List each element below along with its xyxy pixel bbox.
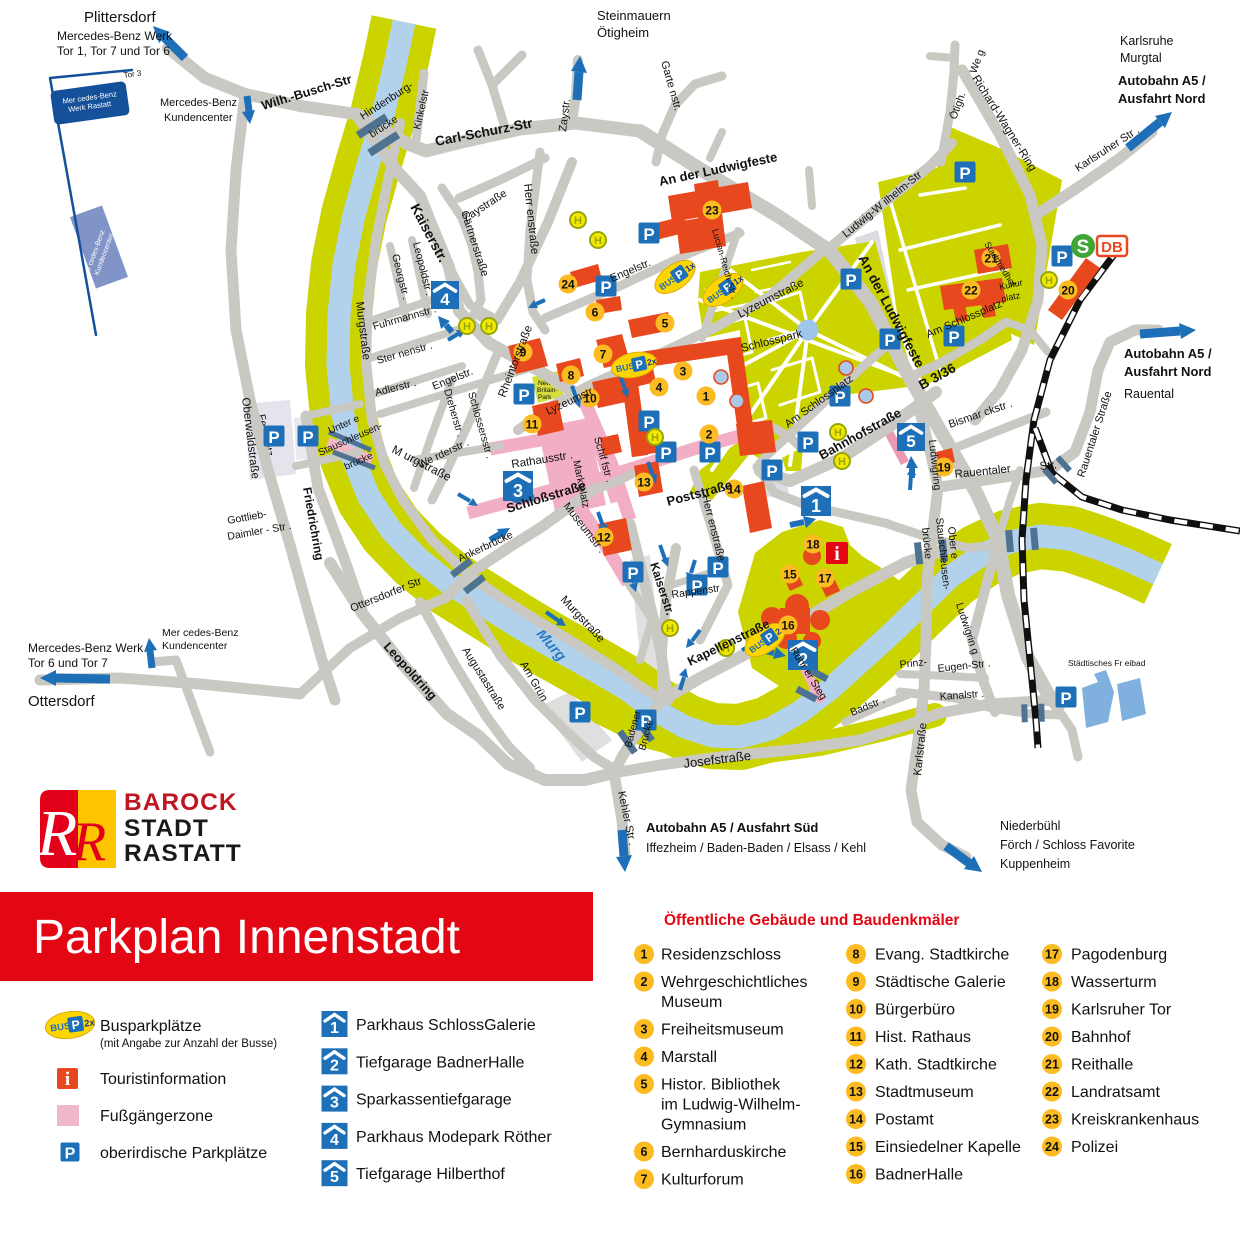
svg-text:Kundencenter: Kundencenter — [164, 112, 233, 124]
svg-text:24: 24 — [1045, 1140, 1059, 1154]
svg-text:11: 11 — [526, 417, 539, 431]
svg-text:12: 12 — [849, 1058, 863, 1072]
svg-text:Mercedes-Benz Werk: Mercedes-Benz Werk — [28, 641, 144, 655]
svg-text:S: S — [1077, 237, 1090, 258]
svg-text:P: P — [574, 704, 585, 723]
svg-text:3: 3 — [680, 364, 687, 378]
svg-text:P: P — [845, 271, 856, 290]
svg-text:H: H — [485, 321, 493, 333]
svg-text:Iffezheim / Baden-Baden / Elsa: Iffezheim / Baden-Baden / Elsass / Kehl — [646, 841, 866, 855]
svg-text:Wehrgeschichtliches: Wehrgeschichtliches — [661, 974, 807, 991]
svg-text:oberirdische Parkplätze: oberirdische Parkplätze — [100, 1145, 267, 1162]
svg-text:Park: Park — [538, 394, 552, 401]
svg-text:13: 13 — [849, 1085, 863, 1099]
svg-text:Parkhaus Modepark Röther: Parkhaus Modepark Röther — [356, 1129, 552, 1146]
svg-text:H: H — [594, 235, 602, 247]
svg-text:Tor 6 und Tor 7: Tor 6 und Tor 7 — [28, 656, 108, 670]
svg-text:P: P — [518, 386, 529, 405]
svg-text:17: 17 — [1045, 948, 1059, 962]
svg-text:7: 7 — [600, 347, 607, 361]
svg-text:Mercedes-Benz Werk: Mercedes-Benz Werk — [57, 29, 173, 43]
svg-text:P: P — [1056, 248, 1067, 267]
svg-text:Mer cedes-Benz: Mer cedes-Benz — [162, 627, 238, 639]
svg-text:Stadtmuseum: Stadtmuseum — [875, 1084, 974, 1101]
svg-text:2: 2 — [330, 1057, 339, 1074]
svg-text:Str.: Str. — [1039, 459, 1057, 473]
svg-text:20: 20 — [1061, 283, 1075, 297]
svg-text:Ausfahrt Nord: Ausfahrt Nord — [1124, 364, 1211, 379]
svg-text:20: 20 — [1045, 1030, 1059, 1044]
svg-text:8: 8 — [853, 948, 860, 962]
svg-text:Fußgängerzone: Fußgängerzone — [100, 1108, 213, 1125]
svg-text:RASTATT: RASTATT — [124, 840, 242, 867]
svg-text:8: 8 — [568, 368, 575, 382]
svg-text:P: P — [704, 444, 715, 463]
svg-text:BAROCK: BAROCK — [124, 789, 238, 816]
svg-text:23: 23 — [705, 203, 719, 217]
svg-text:Öffentliche Gebäude und Bauden: Öffentliche Gebäude und Baudenkmäler — [664, 912, 959, 929]
svg-text:BadnerHalle: BadnerHalle — [875, 1167, 963, 1184]
svg-text:DB: DB — [1101, 239, 1123, 256]
svg-text:Plittersdorf: Plittersdorf — [84, 9, 157, 26]
svg-text:7: 7 — [641, 1173, 648, 1187]
svg-text:Sparkassentiefgarage: Sparkassentiefgarage — [356, 1092, 512, 1109]
svg-text:P: P — [627, 564, 638, 583]
svg-text:21: 21 — [1045, 1058, 1059, 1072]
svg-text:Pagodenburg: Pagodenburg — [1071, 947, 1167, 964]
svg-text:Kundencenter: Kundencenter — [162, 640, 228, 652]
svg-text:Autobahn A5 / Ausfahrt Süd: Autobahn A5 / Ausfahrt Süd — [646, 820, 818, 835]
svg-text:19: 19 — [1045, 1003, 1059, 1017]
svg-text:Touristinformation: Touristinformation — [100, 1071, 226, 1088]
svg-text:16: 16 — [849, 1168, 863, 1182]
svg-text:9: 9 — [853, 975, 860, 989]
svg-text:Einsiedelner Kapelle: Einsiedelner Kapelle — [875, 1139, 1021, 1156]
svg-text:17: 17 — [818, 571, 832, 585]
svg-text:Städtisches Fr eibad: Städtisches Fr eibad — [1068, 658, 1146, 668]
svg-text:5: 5 — [330, 1169, 339, 1186]
svg-text:22: 22 — [964, 283, 978, 297]
svg-text:i: i — [65, 1069, 70, 1090]
svg-text:Evang. Stadtkirche: Evang. Stadtkirche — [875, 947, 1009, 964]
svg-text:13: 13 — [637, 475, 651, 489]
svg-text:P: P — [660, 444, 671, 463]
svg-text:Freiheitsmuseum: Freiheitsmuseum — [661, 1022, 784, 1039]
svg-text:Reithalle: Reithalle — [1071, 1057, 1133, 1074]
svg-text:Rauental: Rauental — [1124, 387, 1174, 401]
svg-text:Städtische Galerie: Städtische Galerie — [875, 974, 1006, 991]
svg-text:3: 3 — [330, 1095, 339, 1112]
svg-text:Autobahn A5 /: Autobahn A5 / — [1124, 346, 1212, 361]
svg-text:Gymnasium: Gymnasium — [661, 1117, 746, 1134]
svg-text:H: H — [838, 456, 846, 468]
svg-text:STADT: STADT — [124, 815, 209, 842]
svg-text:2: 2 — [706, 427, 713, 441]
svg-text:24: 24 — [561, 277, 575, 291]
svg-text:Ötigheim: Ötigheim — [597, 25, 649, 40]
svg-text:i: i — [834, 543, 840, 565]
svg-text:3: 3 — [641, 1023, 648, 1037]
svg-text:H: H — [666, 623, 674, 635]
svg-text:2: 2 — [641, 975, 648, 989]
svg-text:Histor. Bibliothek: Histor. Bibliothek — [661, 1077, 781, 1094]
svg-text:P: P — [65, 1145, 76, 1162]
svg-text:Marstall: Marstall — [661, 1049, 717, 1066]
svg-text:Ausfahrt Nord: Ausfahrt Nord — [1118, 91, 1205, 106]
svg-text:Polizei: Polizei — [1071, 1139, 1118, 1156]
svg-text:Landratsamt: Landratsamt — [1071, 1084, 1160, 1101]
svg-text:11: 11 — [849, 1030, 862, 1044]
svg-text:H: H — [1045, 275, 1053, 287]
svg-text:Parkplan Innenstadt: Parkplan Innenstadt — [33, 911, 460, 964]
svg-text:Tiefgarage Hilberthof: Tiefgarage Hilberthof — [356, 1166, 505, 1183]
svg-text:5: 5 — [662, 316, 669, 330]
svg-text:(mit Angabe zur Anzahl der Bus: (mit Angabe zur Anzahl der Busse) — [100, 1038, 277, 1050]
svg-text:Britain-: Britain- — [537, 387, 558, 394]
svg-text:Ottersdorf: Ottersdorf — [28, 693, 96, 710]
svg-text:Bürgerbüro: Bürgerbüro — [875, 1002, 955, 1019]
svg-text:P: P — [1060, 689, 1071, 708]
svg-text:Autobahn A5 /: Autobahn A5 / — [1118, 73, 1206, 88]
svg-text:1: 1 — [811, 496, 821, 516]
svg-text:Bernharduskirche: Bernharduskirche — [661, 1144, 787, 1161]
svg-text:15: 15 — [783, 567, 797, 581]
svg-text:Kath. Stadtkirche: Kath. Stadtkirche — [875, 1057, 997, 1074]
svg-text:1: 1 — [703, 389, 710, 403]
svg-text:Parkhaus SchlossGalerie: Parkhaus SchlossGalerie — [356, 1017, 536, 1034]
svg-text:Kulturforum: Kulturforum — [661, 1172, 744, 1189]
svg-text:Bahnhof: Bahnhof — [1071, 1029, 1131, 1046]
svg-text:Tiefgarage BadnerHalle: Tiefgarage BadnerHalle — [356, 1054, 525, 1071]
svg-text:H: H — [574, 215, 582, 227]
svg-text:10: 10 — [849, 1003, 863, 1017]
svg-text:Kuppenheim: Kuppenheim — [1000, 857, 1070, 871]
svg-text:P: P — [884, 331, 895, 350]
svg-text:P: P — [600, 278, 611, 297]
svg-text:P: P — [643, 225, 654, 244]
svg-text:18: 18 — [806, 537, 820, 551]
svg-text:P: P — [766, 462, 777, 481]
svg-text:Mercedes-Benz: Mercedes-Benz — [160, 97, 237, 109]
svg-text:Residenzschloss: Residenzschloss — [661, 947, 781, 964]
svg-text:Steinmauern: Steinmauern — [597, 8, 671, 23]
svg-text:Förch / Schloss Favorite: Förch / Schloss Favorite — [1000, 838, 1135, 852]
svg-text:6: 6 — [592, 305, 599, 319]
svg-text:Kreiskrankenhaus: Kreiskrankenhaus — [1071, 1112, 1199, 1129]
svg-text:15: 15 — [849, 1140, 863, 1154]
svg-text:Postamt: Postamt — [875, 1112, 934, 1129]
svg-text:P: P — [268, 428, 279, 447]
svg-text:Wasserturm: Wasserturm — [1071, 974, 1157, 991]
svg-text:4: 4 — [641, 1050, 648, 1064]
svg-text:1: 1 — [330, 1020, 339, 1037]
svg-text:23: 23 — [1045, 1113, 1059, 1127]
svg-text:5: 5 — [906, 432, 915, 451]
svg-text:Karlsruher Tor: Karlsruher Tor — [1071, 1002, 1172, 1019]
svg-text:4: 4 — [656, 380, 663, 394]
svg-text:18: 18 — [1045, 975, 1059, 989]
svg-text:H: H — [463, 321, 471, 333]
svg-text:Karlsruhe: Karlsruhe — [1120, 34, 1174, 48]
svg-text:P: P — [802, 434, 813, 453]
svg-text:Museum: Museum — [661, 994, 722, 1011]
svg-text:4: 4 — [330, 1132, 339, 1149]
svg-text:4: 4 — [440, 290, 450, 309]
svg-text:14: 14 — [849, 1113, 863, 1127]
svg-text:22: 22 — [1045, 1085, 1059, 1099]
svg-text:6: 6 — [641, 1145, 648, 1159]
svg-text:Niederbühl: Niederbühl — [1000, 819, 1060, 833]
svg-text:16: 16 — [781, 618, 795, 632]
svg-text:Tor 1, Tor 7 und Tor 6: Tor 1, Tor 7 und Tor 6 — [57, 44, 170, 58]
svg-text:Hist. Rathaus: Hist. Rathaus — [875, 1029, 971, 1046]
svg-text:Busparkplätze: Busparkplätze — [100, 1018, 201, 1035]
svg-text:P: P — [302, 428, 313, 447]
svg-text:im Ludwig-Wilhelm-: im Ludwig-Wilhelm- — [661, 1097, 801, 1114]
svg-text:H: H — [651, 432, 659, 444]
svg-text:R: R — [71, 811, 106, 873]
svg-text:5: 5 — [641, 1078, 648, 1092]
svg-text:P: P — [959, 164, 970, 183]
svg-text:1: 1 — [641, 948, 648, 962]
svg-text:Murgtal: Murgtal — [1120, 51, 1162, 65]
